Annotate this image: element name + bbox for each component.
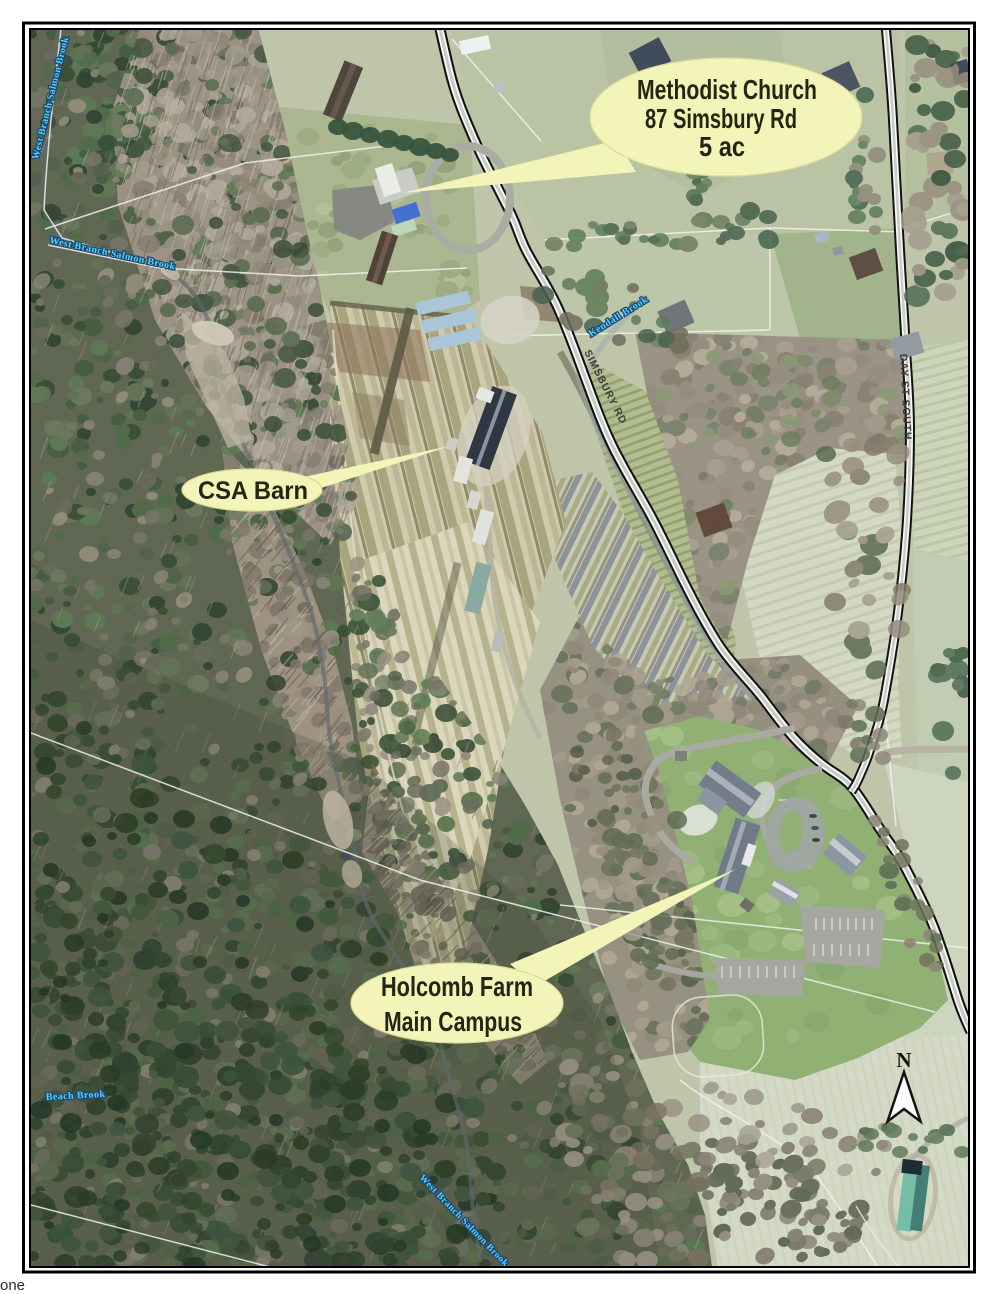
svg-text:one: one [0,1277,25,1294]
